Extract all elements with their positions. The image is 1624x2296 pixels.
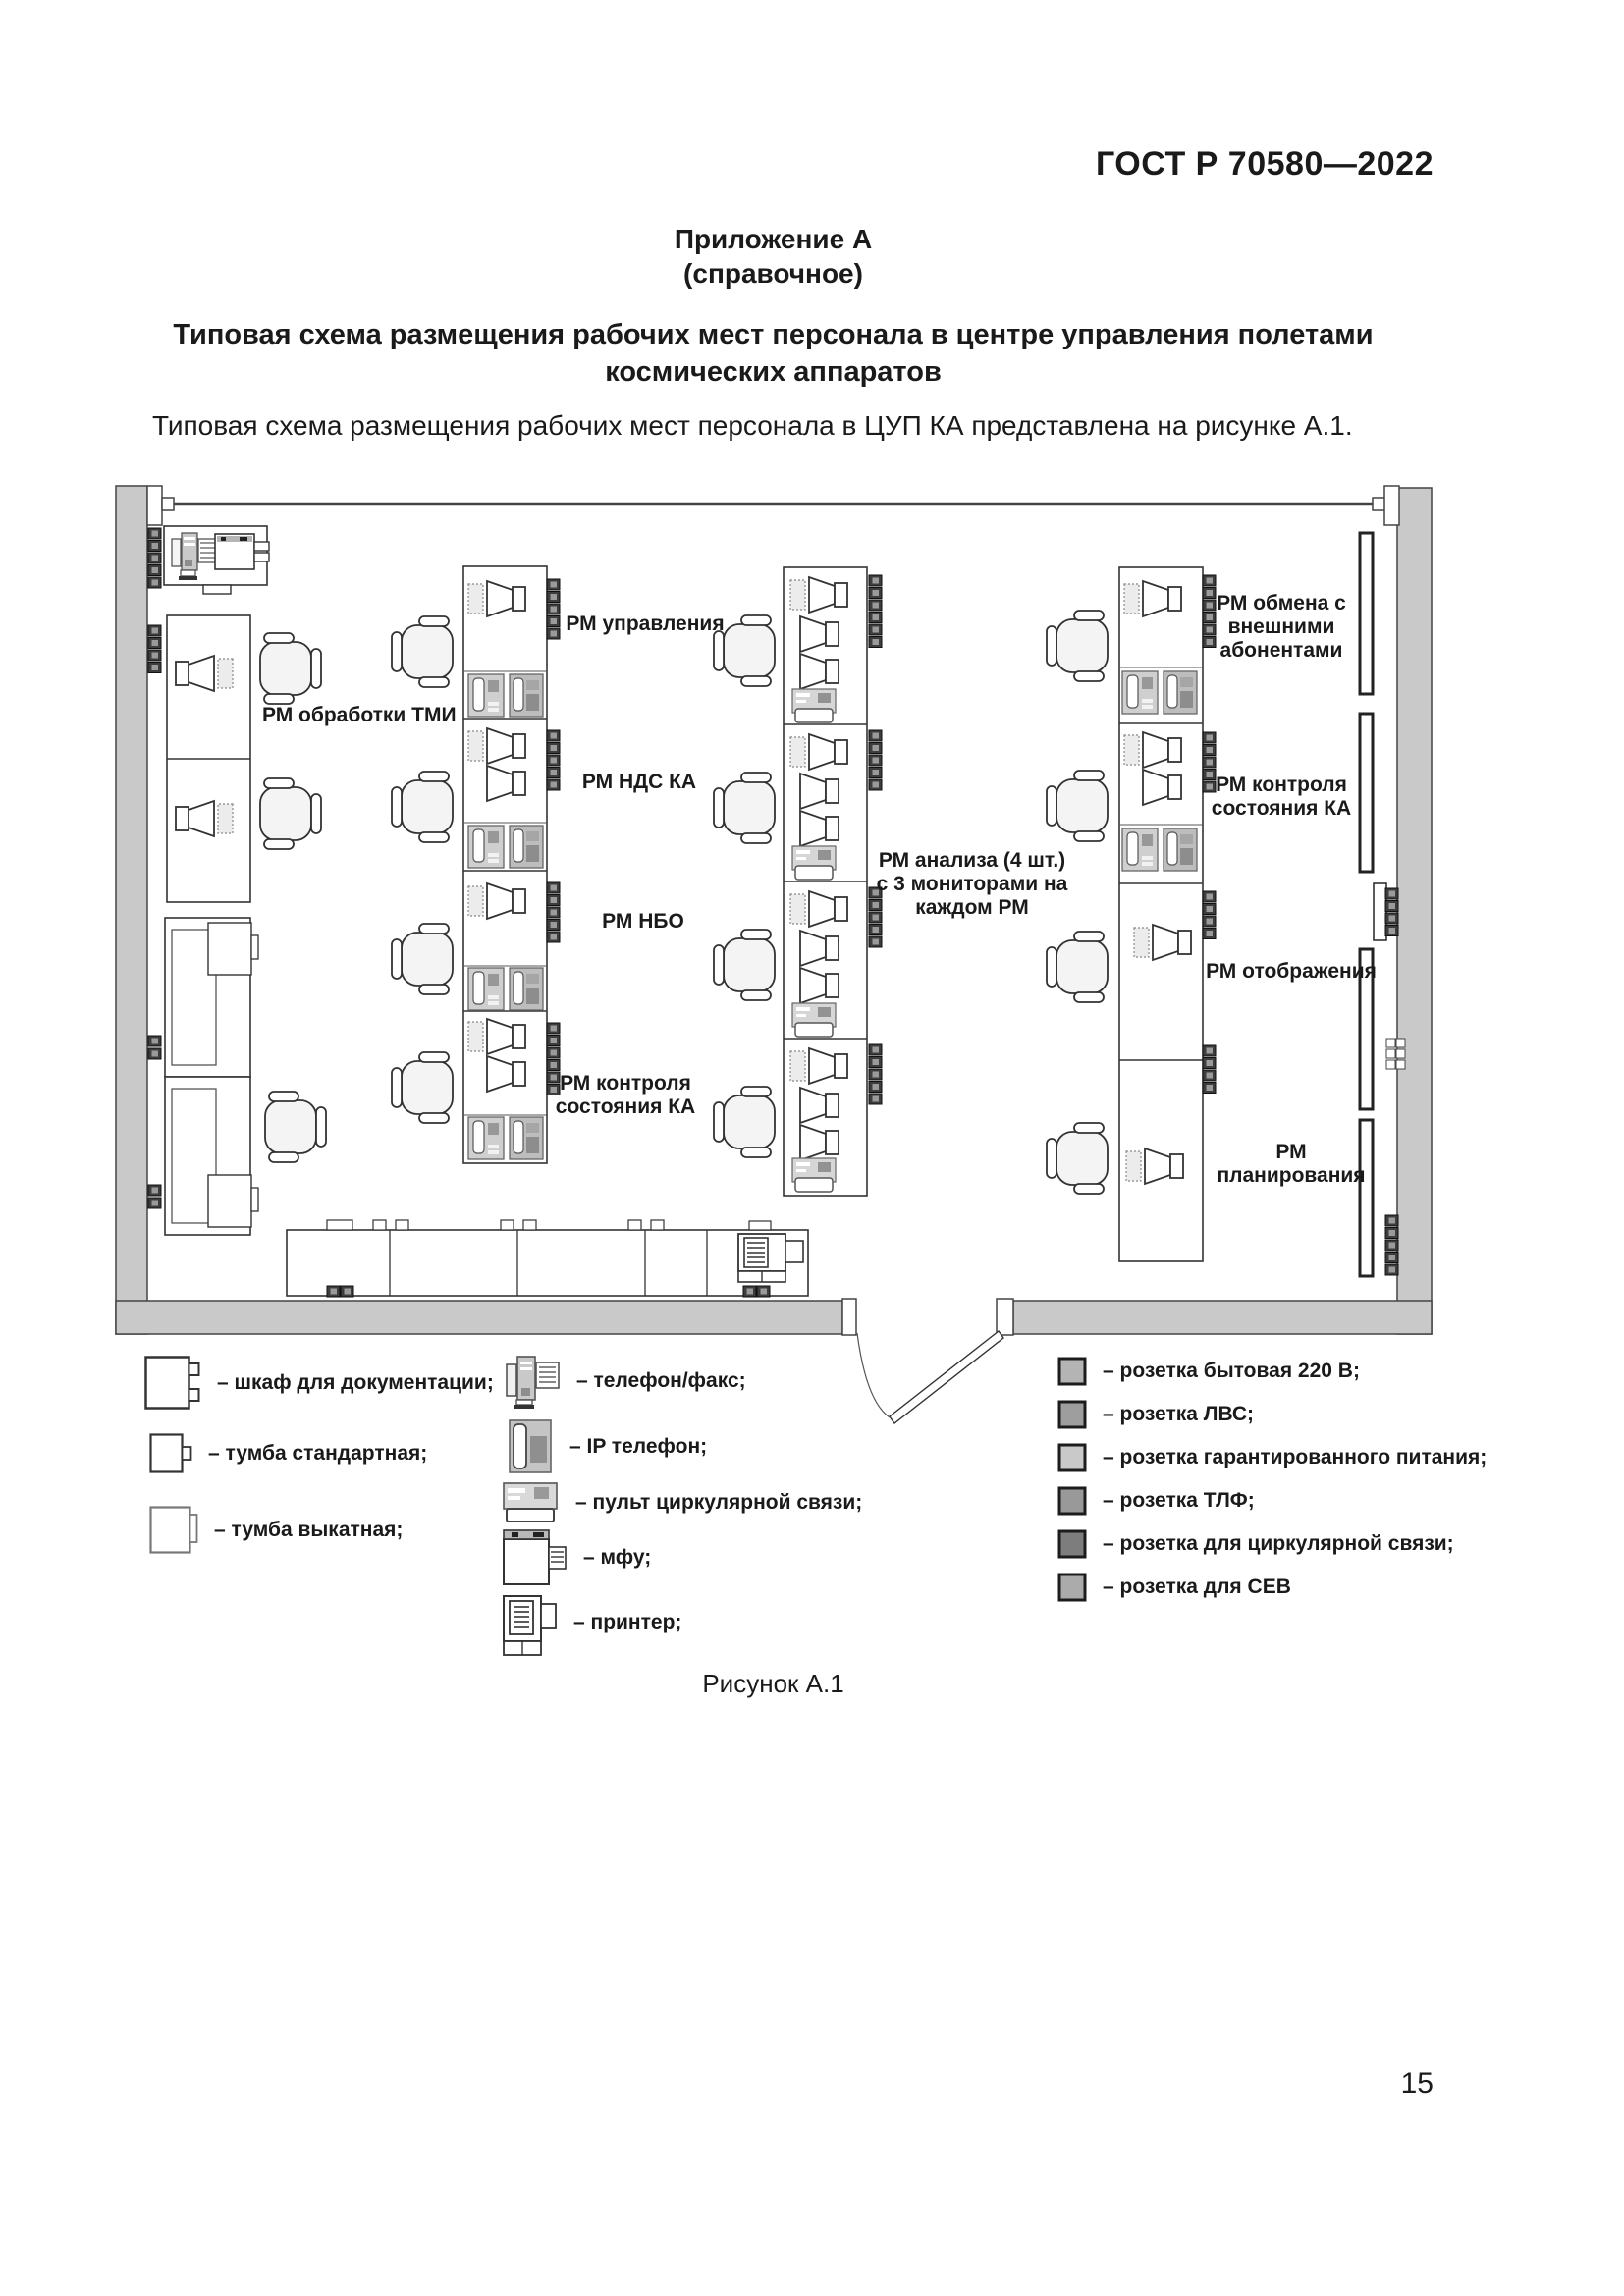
wall-right	[1397, 488, 1432, 1334]
svg-text:РМ контроля: РМ контроля	[1216, 774, 1347, 796]
workstations-tmi	[167, 615, 321, 902]
standard-header: ГОСТ Р 70580—2022	[1096, 145, 1434, 184]
door-jamb-left	[842, 1299, 856, 1335]
door	[842, 1299, 1013, 1423]
monitor-icon	[1124, 581, 1181, 616]
sev-socket-cluster	[1386, 1039, 1405, 1069]
bottom-counter	[287, 1220, 808, 1296]
page-title-line1: Типовая схема размещения рабочих мест пе…	[113, 316, 1434, 353]
legend-item-socket-ups: – розетка гарантированного питания;	[1057, 1443, 1487, 1472]
legend-item-ip-phone: – IP телефон;	[509, 1419, 707, 1474]
svg-text:абонентами: абонентами	[1220, 639, 1343, 662]
cabinet-icon	[144, 1356, 201, 1411]
legend-item-socket-lvs: – розетка ЛВС;	[1057, 1400, 1254, 1429]
fax-icon	[506, 1353, 561, 1410]
svg-text:внешними: внешними	[1228, 615, 1335, 638]
legend-item-mfu: – мфу;	[503, 1529, 651, 1586]
page-title-line2: космических аппаратов	[113, 353, 1434, 391]
legend-item-cabinet: – шкаф для документации;	[144, 1356, 494, 1411]
pedestal-rollout-icon	[149, 1506, 198, 1555]
legend-item-fax: – телефон/факс;	[506, 1353, 746, 1410]
page-title: Типовая схема размещения рабочих мест пе…	[113, 316, 1434, 391]
monitor-icon	[468, 728, 525, 764]
monitor-icon	[1124, 732, 1181, 768]
wall-panel	[1374, 883, 1386, 940]
wall-bottom-left	[116, 1301, 842, 1334]
socket-tlf-icon	[1057, 1486, 1087, 1516]
svg-text:РМ обмена с: РМ обмена с	[1217, 592, 1346, 614]
chair	[392, 772, 453, 842]
chair	[392, 616, 453, 687]
printer-icon	[503, 1588, 558, 1657]
wall-left	[116, 486, 147, 1334]
legend-item-socket-tlf: – розетка ТЛФ;	[1057, 1486, 1255, 1516]
legend-item-pedestal-standard: – тумба стандартная;	[149, 1433, 427, 1474]
svg-text:РМ анализа (4 шт.): РМ анализа (4 шт.)	[879, 849, 1065, 872]
svg-text:с 3 мониторами на: с 3 мониторами на	[877, 873, 1068, 895]
wall-bottom-right	[1013, 1301, 1432, 1334]
label-rm-obmena: РМ обмена с внешними абонентами	[1217, 592, 1346, 662]
label-rm-analiza: РМ анализа (4 шт.) с 3 мониторами на каж…	[877, 849, 1068, 919]
figure-caption: Рисунок А.1	[113, 1669, 1434, 1699]
svg-text:РМ контроля: РМ контроля	[560, 1072, 691, 1095]
monitor-icon	[176, 801, 233, 836]
monitor-icon	[176, 656, 233, 691]
label-rm-upravleniya: РМ управления	[566, 613, 724, 635]
door-leaf	[890, 1331, 1003, 1423]
chair	[392, 1052, 453, 1123]
wall-cabinets	[165, 918, 326, 1235]
document-page: { "page": { "standard": "ГОСТ Р 70580—20…	[0, 0, 1624, 2296]
intro-paragraph: Типовая схема размещения рабочих мест пе…	[113, 410, 1434, 442]
workstations-col2	[392, 566, 547, 1163]
label-rm-kontrolya-left: РМ контроля состояния КА	[556, 1072, 695, 1118]
ip-phone-icon	[509, 1419, 554, 1474]
label-rm-nbo: РМ НБО	[602, 910, 684, 933]
annex-heading: Приложение А (справочное)	[113, 222, 1434, 291]
tumba-icon	[208, 1175, 251, 1227]
monitor-icon	[1126, 1148, 1183, 1184]
door-jamb-right	[997, 1299, 1013, 1335]
chair	[1047, 771, 1108, 841]
monitor-icon	[468, 581, 525, 616]
chair	[392, 924, 453, 994]
chair	[1047, 932, 1108, 1002]
page-number: 15	[1401, 2067, 1434, 2101]
chair	[265, 1092, 326, 1162]
svg-text:планирования: планирования	[1217, 1164, 1365, 1187]
circular-comms-console-icon	[503, 1482, 560, 1523]
pedestal-standard-icon	[149, 1433, 192, 1474]
legend-item-printer: – принтер;	[503, 1588, 681, 1657]
socket-sev-icon	[1057, 1573, 1087, 1602]
monitor-icon	[1134, 925, 1191, 960]
socket-lvs-icon	[1057, 1400, 1087, 1429]
annex-title: Приложение А	[113, 222, 1434, 256]
door-swing-arc	[857, 1333, 890, 1417]
annex-subtitle: (справочное)	[113, 256, 1434, 291]
equipment-desk	[164, 526, 269, 594]
legend-item-socket-220v: – розетка бытовая 220 В;	[1057, 1357, 1360, 1386]
chair	[260, 633, 321, 704]
workstations-analiza	[714, 567, 867, 1196]
label-rm-kontrolya-right: РМ контроля состояния КА	[1212, 774, 1351, 820]
monitor-icon	[468, 1019, 525, 1054]
chair	[714, 773, 775, 843]
svg-text:состояния КА: состояния КА	[1212, 797, 1351, 820]
tumba-icon	[208, 923, 251, 975]
wall-post-top-left	[147, 486, 162, 525]
legend-item-socket-sev: – розетка для СЕВ	[1057, 1573, 1291, 1602]
socket-220v-icon	[1057, 1357, 1087, 1386]
chair	[1047, 1123, 1108, 1194]
svg-text:каждом РМ: каждом РМ	[915, 896, 1029, 919]
chair	[260, 778, 321, 849]
wall-post-top-right	[1384, 486, 1399, 525]
socket-guaranteed-power-icon	[1057, 1443, 1087, 1472]
chair	[714, 930, 775, 1000]
svg-text:РМ: РМ	[1275, 1141, 1306, 1163]
label-rm-otobrazheniya: РМ отображения	[1206, 960, 1377, 983]
chair	[714, 1087, 775, 1157]
svg-text:состояния КА: состояния КА	[556, 1095, 695, 1118]
mfu-icon	[503, 1529, 568, 1586]
label-rm-nds-ka: РМ НДС КА	[582, 771, 696, 793]
legend-item-socket-circular: – розетка для циркулярной связи;	[1057, 1529, 1454, 1559]
label-rm-planirovaniya: РМ планирования	[1217, 1141, 1365, 1187]
legend-item-pedestal-rollout: – тумба выкатная;	[149, 1506, 403, 1555]
chair	[1047, 611, 1108, 681]
floor-plan: РМ обработки ТМИ РМ управления РМ НДС КА…	[113, 471, 1434, 1433]
label-rm-obrabotki-tmi: РМ обработки ТМИ	[262, 704, 457, 726]
legend-item-console: – пульт циркулярной связи;	[503, 1482, 862, 1523]
workstations-col4	[1047, 567, 1203, 1261]
monitor-icon	[468, 883, 525, 919]
socket-circular-comms-icon	[1057, 1529, 1087, 1559]
